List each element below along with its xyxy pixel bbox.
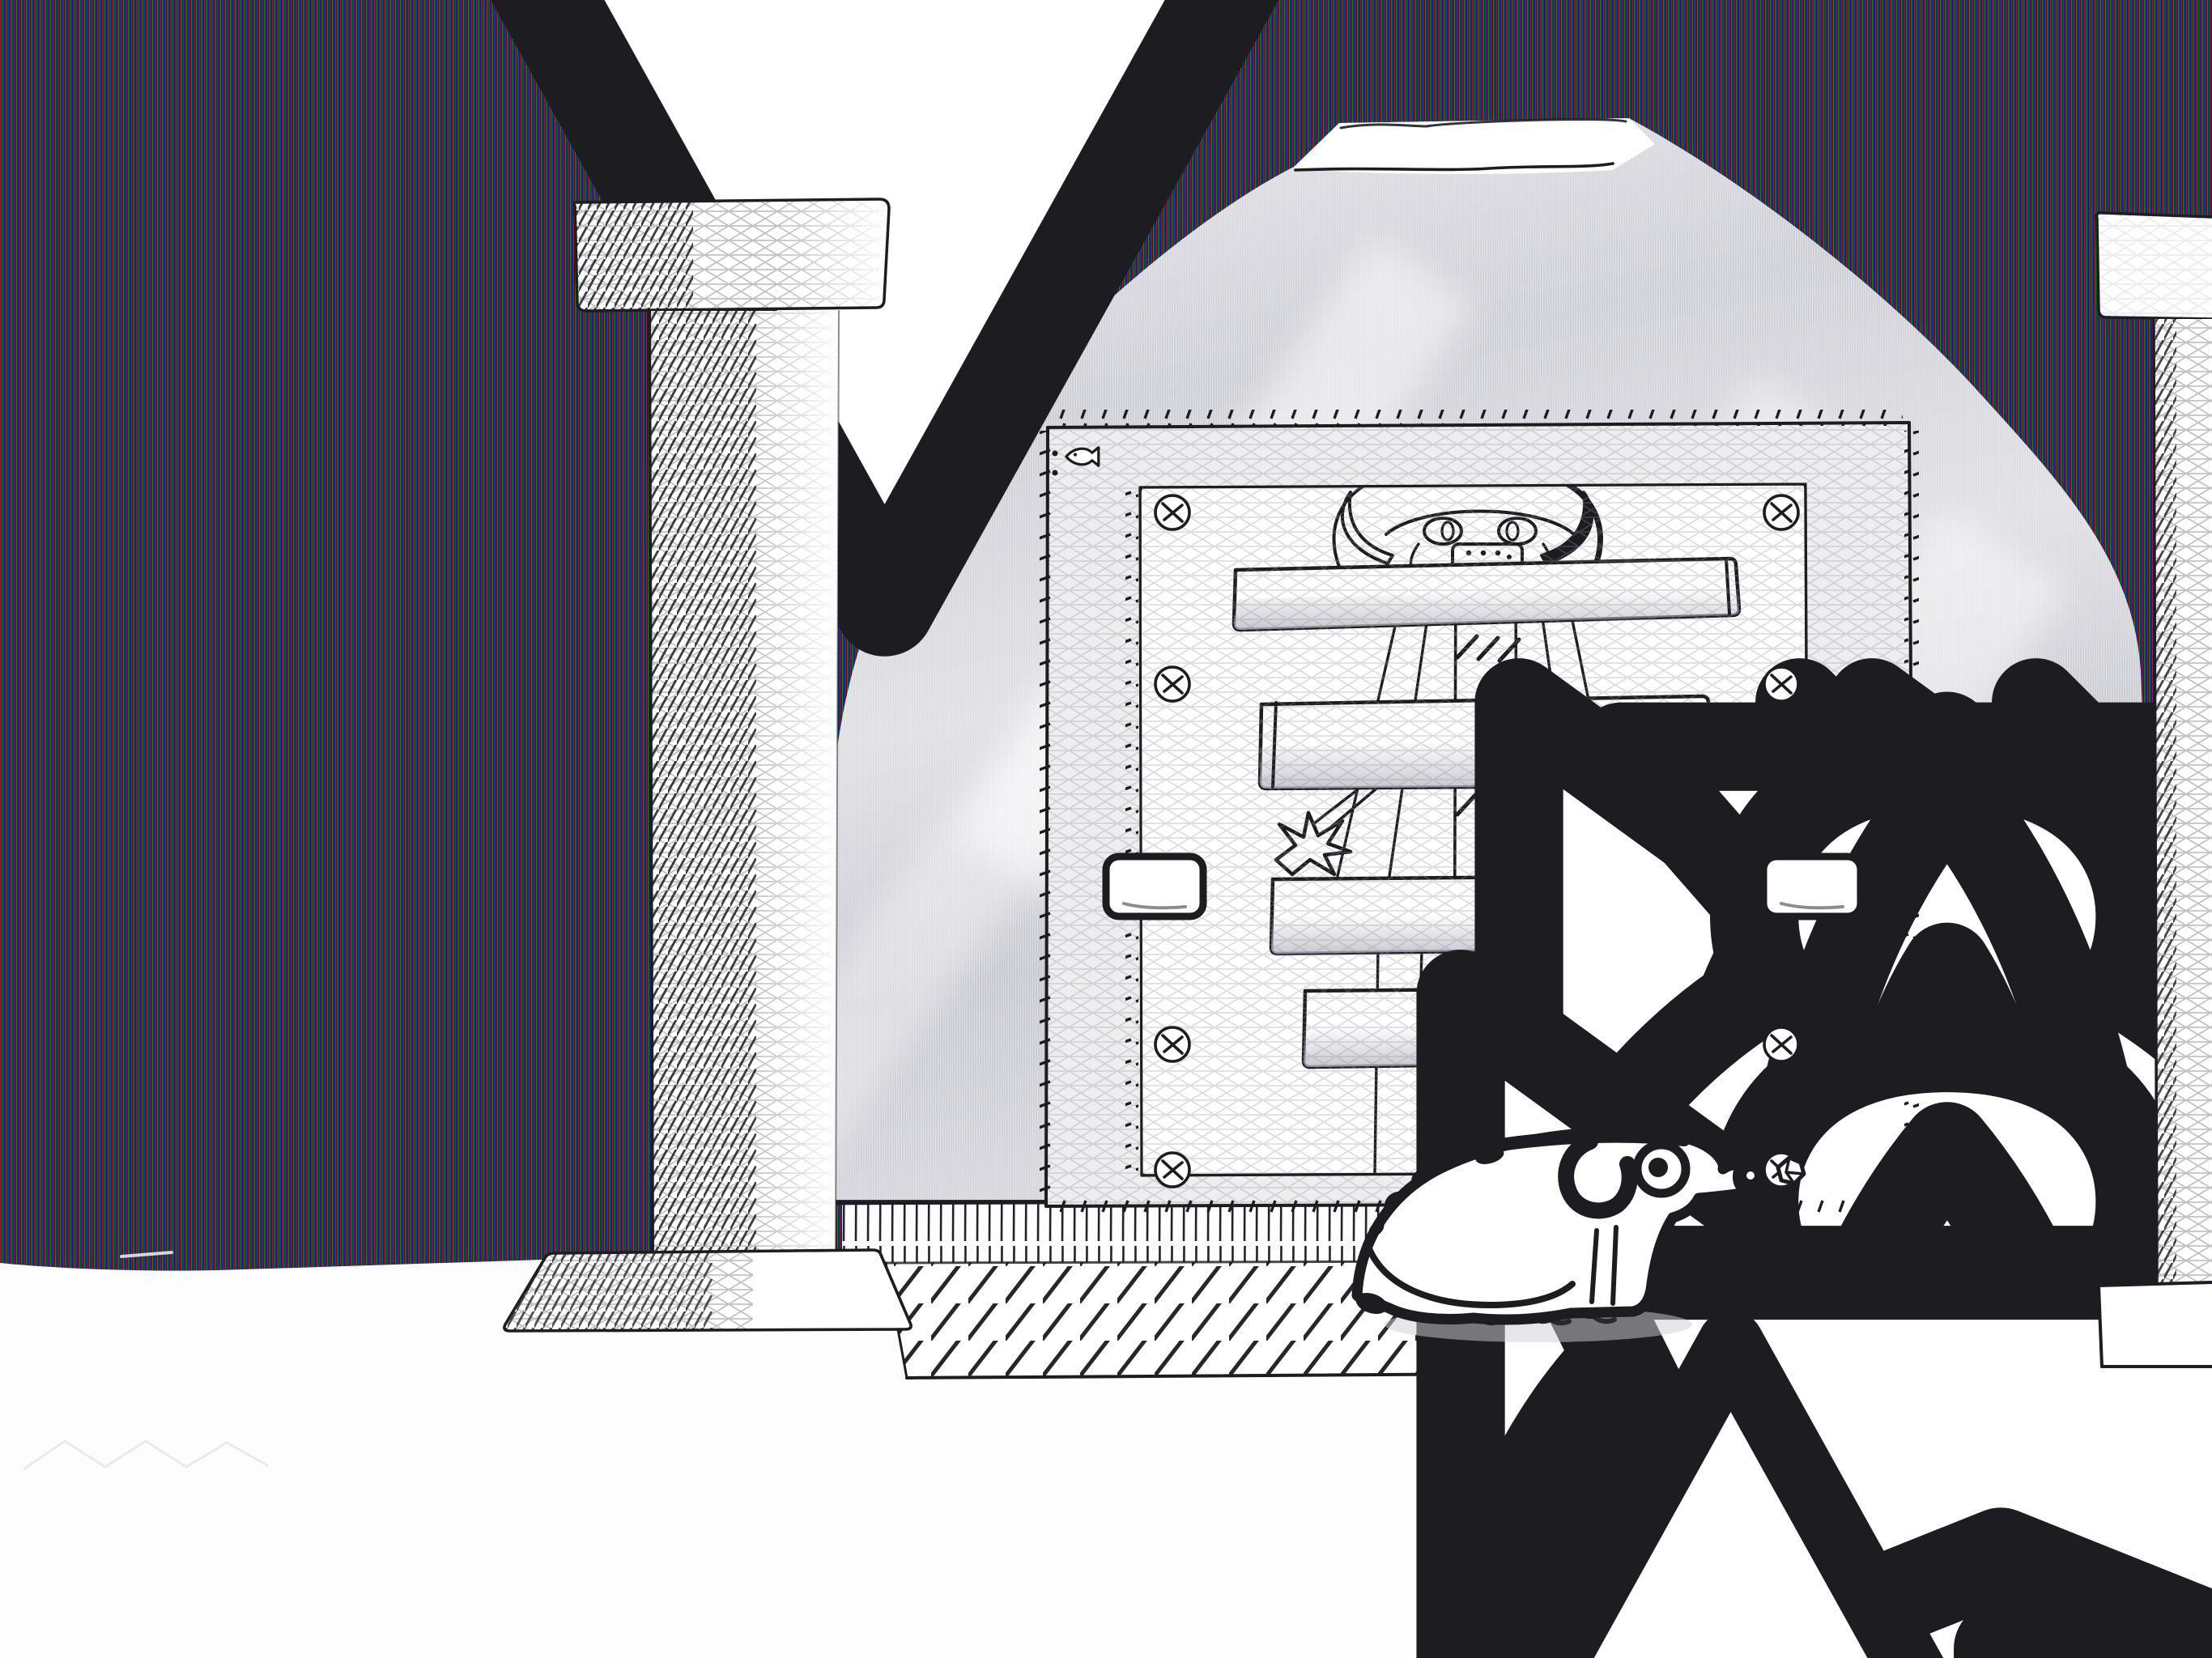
ground-zigzag-watermark	[24, 1441, 267, 1469]
right-column-capital	[2095, 212, 2212, 319]
door-handle-left[interactable]	[1106, 857, 1203, 916]
left-column-capital	[572, 199, 892, 312]
scene-canvas	[0, 0, 2212, 1658]
dog-pupil	[1648, 1158, 1668, 1177]
artwork	[0, 0, 2212, 1658]
left-column-shaft	[649, 311, 839, 1255]
pebble[interactable]	[1778, 1158, 1804, 1184]
left-column-plinth	[502, 1250, 911, 1334]
door-handle-right[interactable]	[1763, 857, 1861, 916]
game-viewport	[0, 0, 2212, 1658]
right-column-shaft	[2152, 319, 2212, 1284]
right-column-plinth	[2099, 1282, 2212, 1367]
